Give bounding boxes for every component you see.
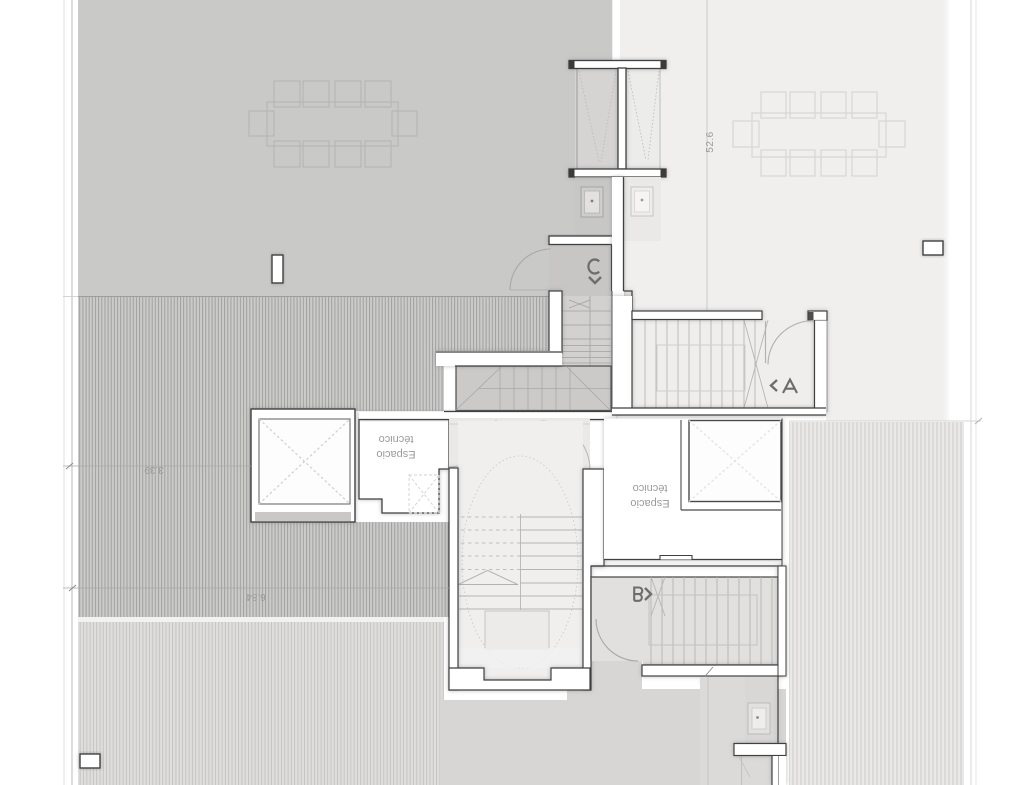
svg-text:52.6: 52.6 [705,131,716,152]
svg-text:Espacio: Espacio [630,497,669,509]
svg-text:6.84: 6.84 [246,591,266,602]
svg-text:técnico: técnico [379,433,414,445]
svg-text:Espacio: Espacio [376,448,415,460]
svg-text:3.39: 3.39 [144,464,164,475]
svg-text:técnico: técnico [633,482,668,494]
